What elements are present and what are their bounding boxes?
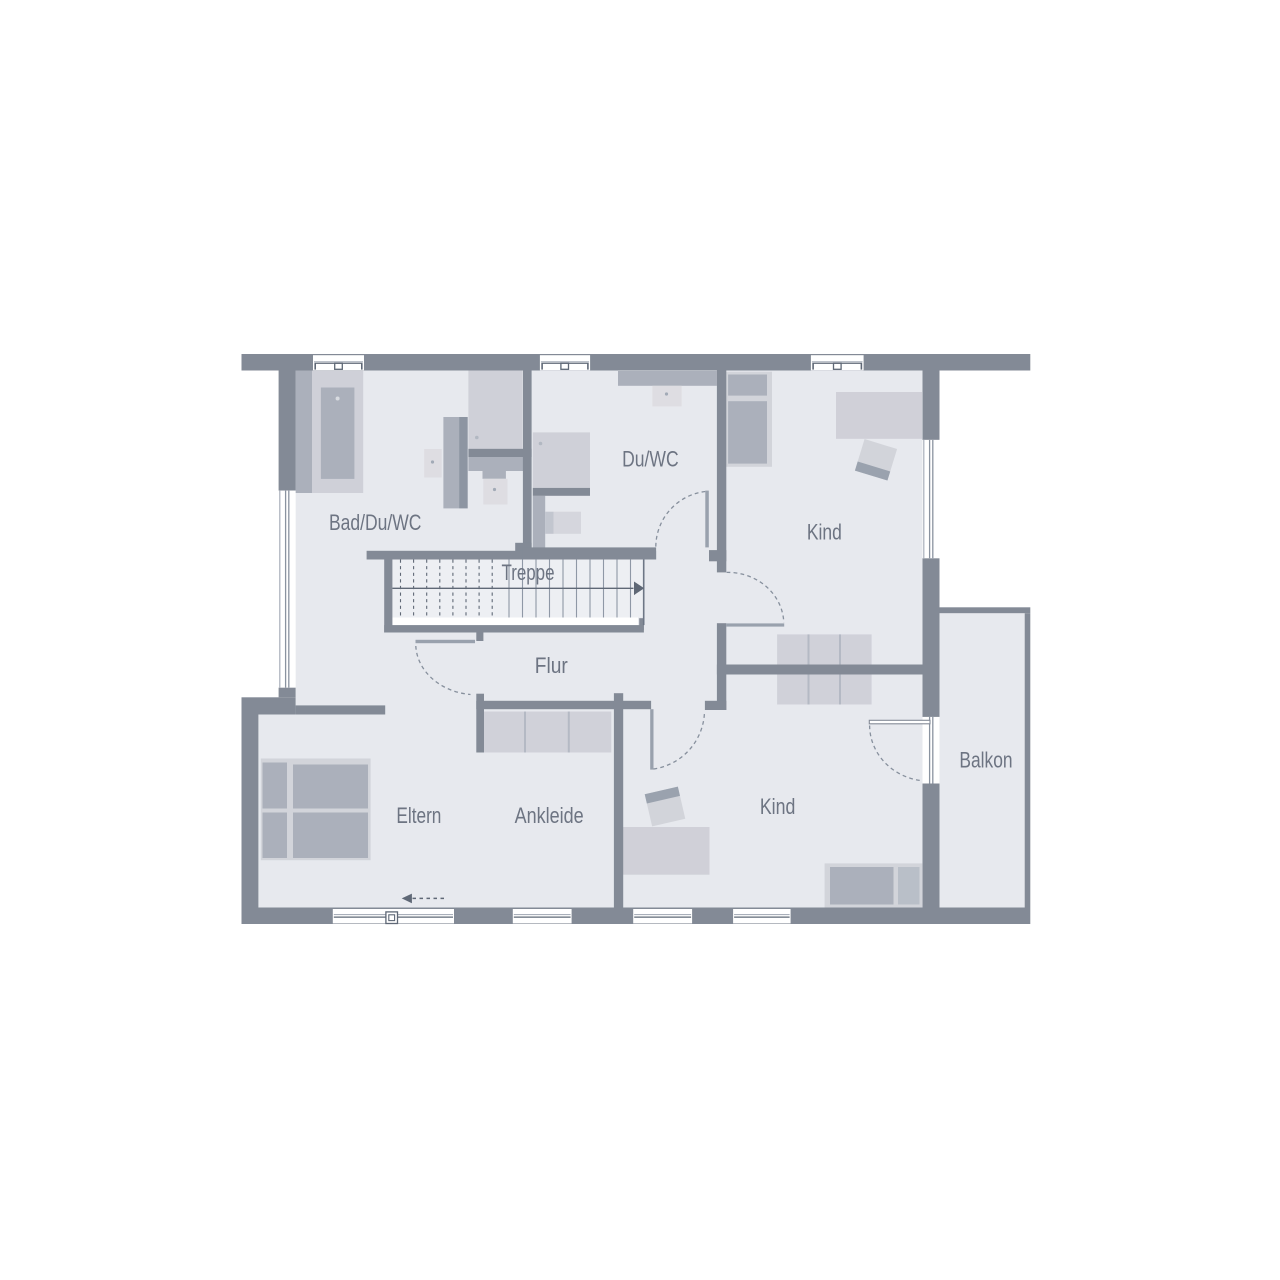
svg-text:Balkon: Balkon [959,748,1012,773]
svg-text:Kind: Kind [760,794,796,819]
svg-text:Bad/Du/WC: Bad/Du/WC [329,510,422,535]
svg-text:Treppe: Treppe [502,560,555,585]
svg-text:Du/WC: Du/WC [622,447,679,472]
svg-text:Eltern: Eltern [396,803,441,828]
svg-text:Ankleide: Ankleide [515,803,584,828]
svg-text:Kind: Kind [807,520,842,545]
svg-text:Flur: Flur [535,653,568,678]
